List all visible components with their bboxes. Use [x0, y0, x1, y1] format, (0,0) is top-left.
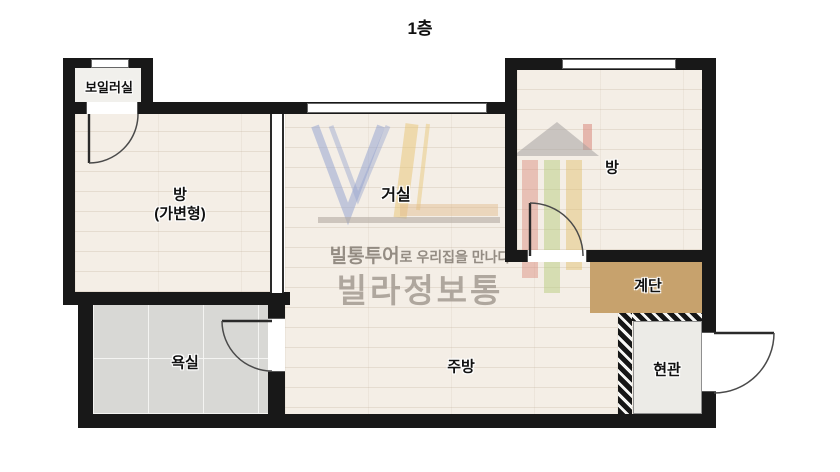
sliding-partition-track [270, 114, 284, 293]
wall-left-room-bottom [63, 292, 290, 305]
wall-bottom-outer [78, 414, 716, 428]
room-label-living: 거실 [381, 186, 410, 206]
door-gap-entrance [702, 332, 716, 392]
watermark-brand: 빌라정보통 [280, 264, 560, 312]
window-right-room [562, 59, 676, 69]
window-living [307, 103, 487, 113]
entrance-step-hatch-left [618, 313, 632, 414]
door-gap-boiler [86, 102, 138, 114]
wall-left-outer [63, 102, 75, 305]
room-label-left-room: 방 (가변형) [154, 186, 205, 224]
watermark-tagline-tail: 로 우리집을 만나다 [400, 249, 511, 265]
door-gap-right-room [527, 250, 587, 262]
wall-right-outer-upper [702, 58, 716, 332]
wall-right-outer-lower [702, 392, 716, 428]
wall-bathroom-left [78, 293, 93, 428]
door-arc-entrance [714, 333, 774, 393]
logo-underline [318, 217, 500, 223]
floor-title: 1층 [0, 14, 840, 39]
room-label-stairs: 계단 [634, 278, 662, 297]
room-label-entrance: 현관 [653, 362, 681, 381]
room-label-boiler: 보일러실 [85, 80, 133, 96]
room-label-right-room: 방 [605, 160, 619, 179]
window-boiler [91, 59, 129, 68]
room-label-bathroom: 욕실 [171, 355, 199, 374]
room-label-kitchen: 주방 [447, 359, 475, 378]
wall-right-room-left [505, 58, 517, 262]
door-gap-bathroom [268, 318, 285, 372]
floor-plan: 1층 빌통투어로 우리집을 만나다 빌라정보통 [0, 0, 840, 472]
